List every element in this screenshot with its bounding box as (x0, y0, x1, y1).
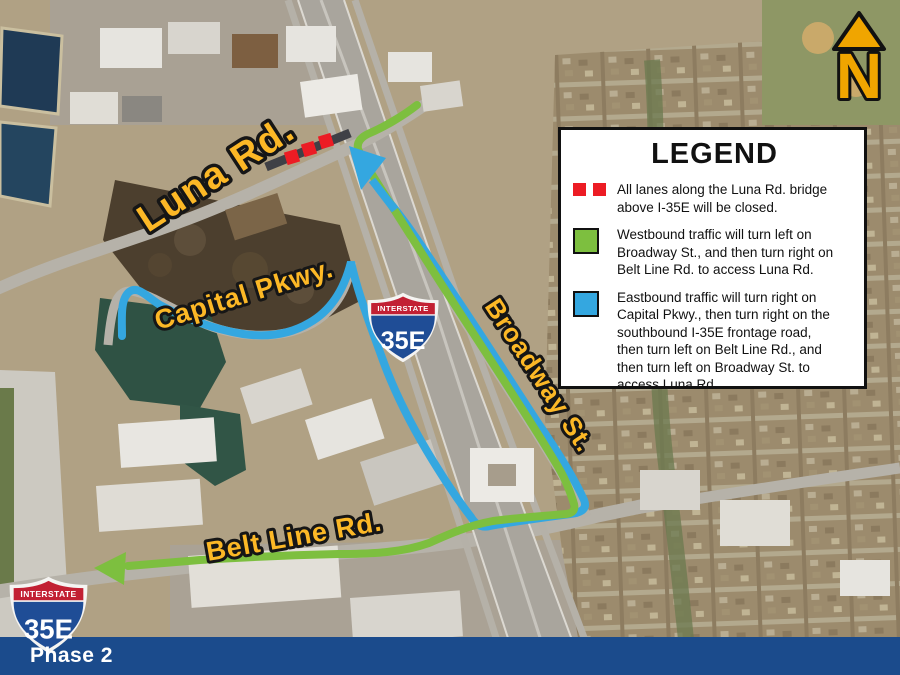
legend-item-closure: All lanes along the Luna Rd. bridge abov… (573, 181, 856, 216)
shield-top-text: INTERSTATE (20, 589, 76, 599)
legend-item-text: Westbound traffic will turn left on Broa… (617, 226, 833, 279)
shield-number: 35E (381, 327, 426, 355)
legend-item-text: Eastbound traffic will turn right on Cap… (617, 289, 830, 394)
shield-top-text: INTERSTATE (377, 304, 428, 313)
phase-bottom-bar (0, 637, 900, 675)
closure-dashes-icon (573, 181, 617, 216)
legend-panel: LEGEND All lanes along the Luna Rd. brid… (558, 127, 867, 389)
red-dash-icon (573, 183, 586, 196)
legend-item-eastbound: Eastbound traffic will turn right on Cap… (573, 289, 856, 394)
blue-route-swatch-icon (573, 291, 599, 317)
red-dash-icon (593, 183, 606, 196)
north-letter: N (836, 40, 882, 112)
legend-item-text: All lanes along the Luna Rd. bridge abov… (617, 181, 827, 216)
legend-item-westbound: Westbound traffic will turn left on Broa… (573, 226, 856, 279)
legend-title: LEGEND (573, 138, 856, 171)
green-route-swatch-icon (573, 228, 599, 254)
phase-label: Phase 2 (30, 644, 113, 668)
shield-number: 35E (24, 613, 73, 644)
phase-map: Luna Rd. Capital Pkwy. Broadway St. Belt… (0, 0, 900, 675)
